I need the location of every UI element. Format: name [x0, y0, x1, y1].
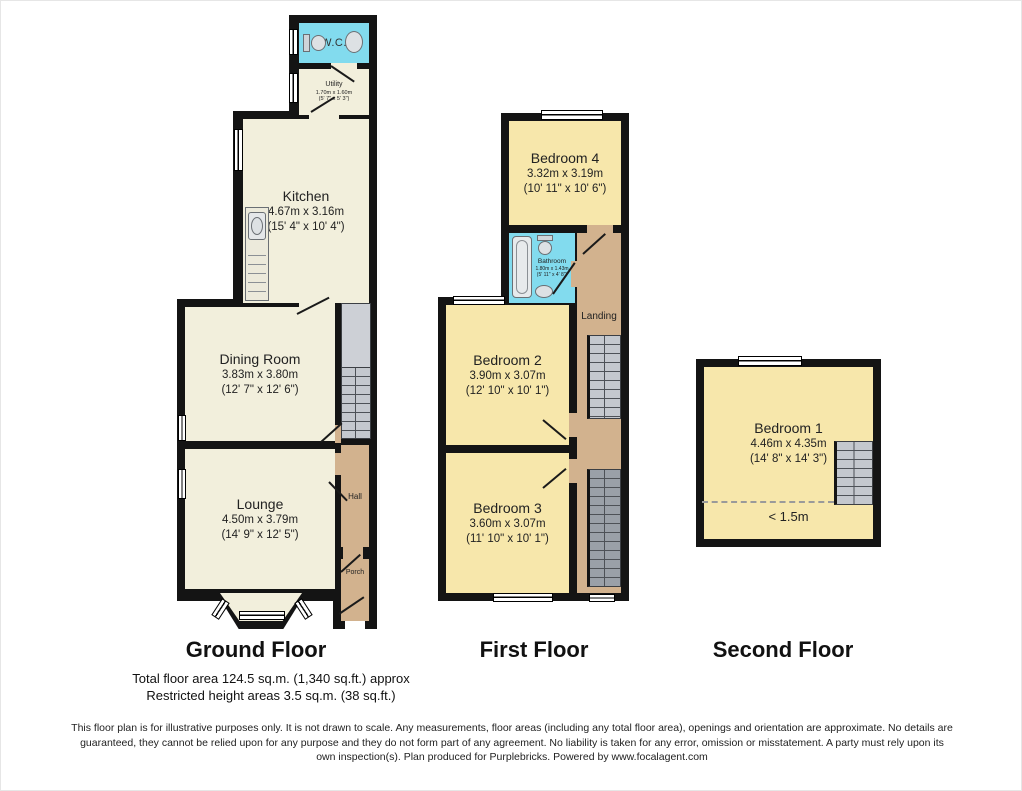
staircase — [834, 441, 873, 505]
window — [738, 356, 802, 366]
room-dining: Dining Room 3.83m x 3.80m (12' 7" x 12' … — [185, 307, 335, 441]
sink-icon — [345, 31, 363, 53]
window — [493, 593, 553, 602]
staircase-down — [587, 469, 621, 587]
room-name: Hall — [348, 492, 362, 501]
room-name: Bedroom 4 — [531, 150, 599, 168]
floor-plan-image: W.C. Utility 1.70m x 1.60m (5' 7" x 5' 3… — [0, 0, 1022, 791]
disclaimer-text: This floor plan is for illustrative purp… — [71, 721, 953, 765]
window — [178, 469, 186, 499]
room-name: Dining Room — [220, 351, 301, 369]
staircase-up — [587, 335, 621, 419]
room-name: Bedroom 3 — [473, 500, 541, 518]
room-name: Kitchen — [283, 188, 330, 206]
room-dimensions-metric: 3.60m x 3.07m — [469, 517, 545, 531]
door-opening — [587, 225, 613, 233]
room-dimensions-metric: 4.67m x 3.16m — [268, 205, 344, 219]
room-name: Landing — [577, 311, 621, 322]
first-floor-title: First Floor — [414, 637, 654, 663]
restricted-height-label: < 1.5m — [704, 509, 873, 524]
room-dimensions-metric: 4.50m x 3.79m — [222, 513, 298, 527]
room-dimensions-imperial: (15' 4" x 10' 4") — [267, 220, 344, 234]
door-opening — [569, 459, 577, 483]
room-name: Bathroom — [538, 258, 566, 266]
room-dimensions-imperial: (12' 7" x 12' 6") — [221, 383, 298, 397]
door-opening — [335, 453, 341, 475]
restricted-height-areas: Restricted height areas 3.5 sq.m. (38 sq… — [91, 688, 451, 705]
room-bedroom-2: Bedroom 2 3.90m x 3.07m (12' 10" x 10' 1… — [446, 305, 569, 445]
window — [453, 296, 505, 305]
toilet-icon — [538, 241, 552, 255]
kitchen-drainer-icon — [248, 247, 266, 295]
total-floor-area: Total floor area 124.5 sq.m. (1,340 sq.f… — [91, 671, 451, 688]
sink-icon — [535, 285, 553, 298]
toilet-icon — [303, 34, 310, 52]
room-hall: Hall — [341, 445, 369, 547]
kitchen-sink-bowl-icon — [251, 217, 263, 235]
window — [589, 594, 615, 602]
room-bedroom-3: Bedroom 3 3.60m x 3.07m (11' 10" x 10' 1… — [446, 453, 569, 593]
room-dimensions-imperial: (11' 10" x 10' 1") — [466, 532, 549, 546]
door-opening — [343, 547, 363, 559]
room-dimensions-metric: 4.46m x 4.35m — [750, 437, 826, 451]
room-name: Bedroom 2 — [473, 352, 541, 370]
ground-floor-title: Ground Floor — [136, 637, 376, 663]
door-opening — [569, 413, 577, 437]
window — [234, 129, 243, 171]
room-name: Porch — [346, 569, 364, 576]
room-name: Lounge — [237, 496, 284, 514]
room-lounge: Lounge 4.50m x 3.79m (14' 9" x 12' 5") — [185, 449, 335, 589]
window — [289, 29, 298, 55]
room-bedroom-4: Bedroom 4 3.32m x 3.19m (10' 11" x 10' 6… — [509, 121, 621, 225]
room-name: Utility — [325, 81, 342, 90]
toilet-icon — [311, 35, 326, 51]
room-dimensions-metric: 3.32m x 3.19m — [527, 167, 603, 181]
bathtub-icon — [512, 236, 532, 298]
window — [178, 415, 186, 441]
bay-window — [239, 611, 285, 620]
staircase — [341, 303, 371, 367]
second-floor-title: Second Floor — [663, 637, 903, 663]
staircase-steps — [341, 367, 371, 439]
room-dimensions-imperial: (10' 11" x 10' 6") — [524, 182, 607, 196]
room-dimensions-imperial: (14' 8" x 14' 3") — [750, 452, 827, 466]
window — [289, 73, 298, 103]
area-summary: Total floor area 124.5 sq.m. (1,340 sq.f… — [91, 671, 451, 705]
room-utility: Utility 1.70m x 1.60m (5' 7" x 5' 3") — [299, 69, 369, 115]
door-opening — [309, 111, 339, 119]
door-opening — [345, 621, 365, 629]
bay-window-side — [294, 598, 312, 620]
room-dimensions-metric: 3.90m x 3.07m — [469, 369, 545, 383]
restricted-height-line — [702, 501, 834, 503]
room-name: Bedroom 1 — [754, 420, 822, 438]
room-dimensions-imperial: (14' 9" x 12' 5") — [221, 528, 298, 542]
room-dimensions-imperial: (12' 10" x 10' 1") — [466, 384, 550, 398]
room-dimensions-metric: 3.83m x 3.80m — [222, 368, 298, 382]
window — [541, 110, 603, 120]
